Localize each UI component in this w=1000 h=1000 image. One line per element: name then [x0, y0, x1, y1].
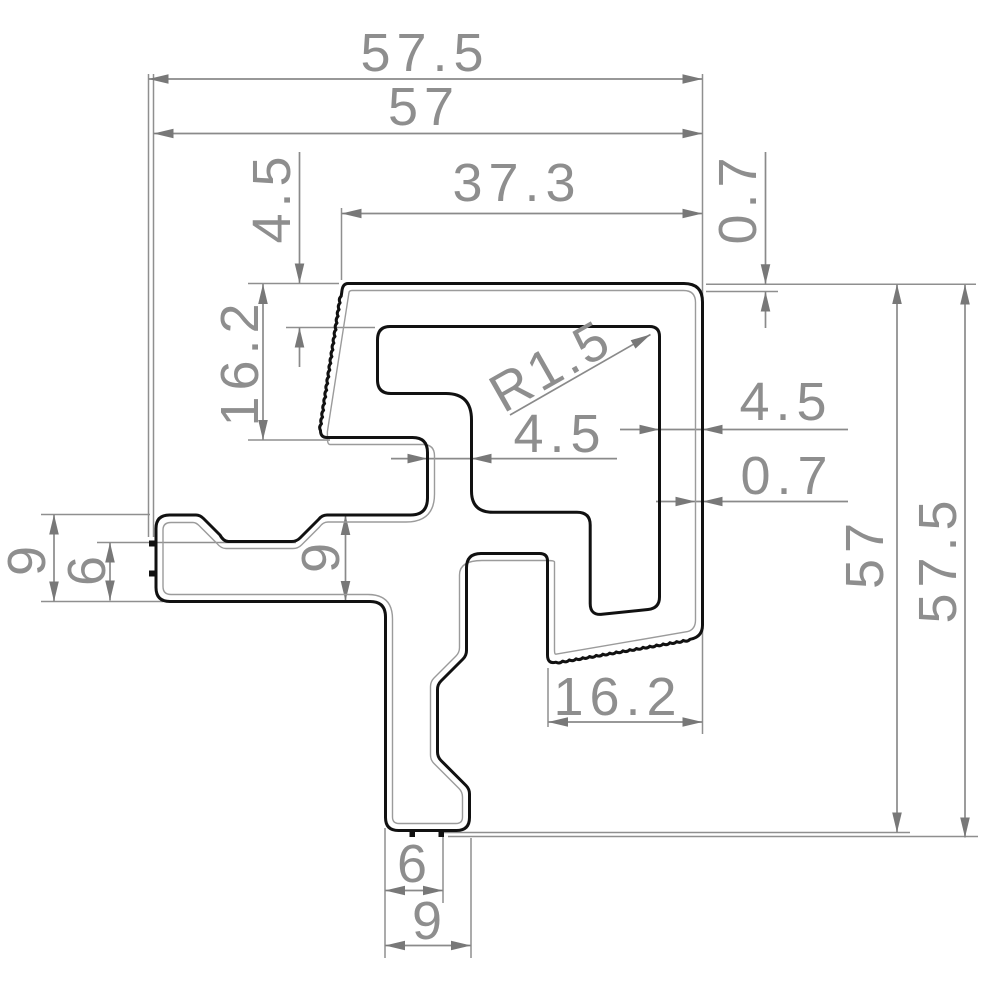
- svg-text:9: 9: [0, 546, 57, 576]
- svg-text:57: 57: [388, 77, 460, 137]
- svg-text:57.5: 57.5: [360, 23, 489, 83]
- svg-text:0.7: 0.7: [740, 446, 833, 506]
- svg-text:9: 9: [291, 543, 351, 573]
- svg-text:16.2: 16.2: [553, 667, 682, 727]
- svg-text:9: 9: [412, 891, 442, 951]
- svg-text:6: 6: [57, 556, 117, 586]
- svg-text:57: 57: [835, 517, 895, 589]
- svg-text:16.2: 16.2: [210, 297, 270, 426]
- svg-text:4.5: 4.5: [513, 404, 606, 464]
- svg-text:4.5: 4.5: [739, 372, 832, 432]
- svg-text:37.3: 37.3: [452, 153, 581, 213]
- svg-text:6: 6: [397, 834, 427, 894]
- svg-text:4.5: 4.5: [242, 150, 302, 243]
- svg-text:57.5: 57.5: [908, 494, 968, 623]
- svg-text:0.7: 0.7: [708, 151, 768, 244]
